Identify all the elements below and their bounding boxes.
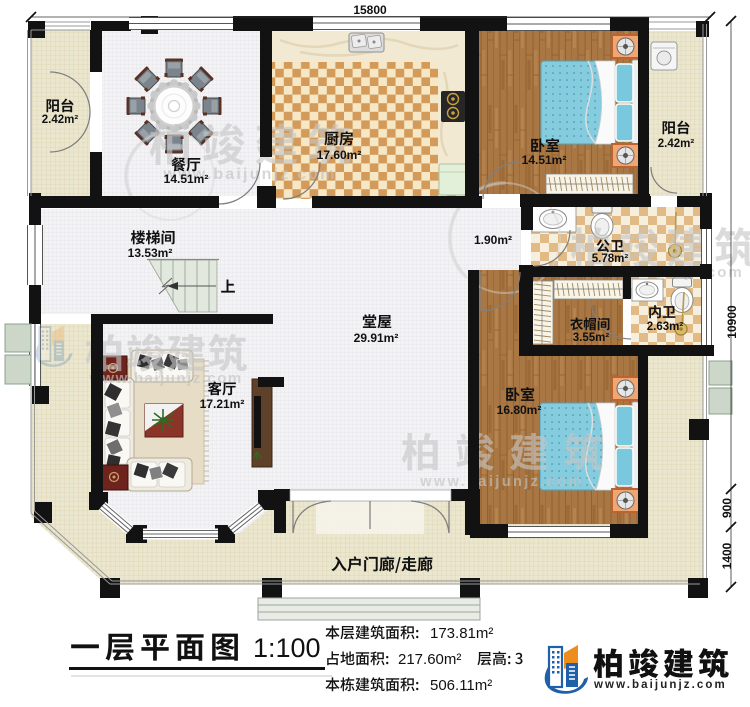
- svg-text:www.baijunjz.com: www.baijunjz.com: [593, 679, 727, 691]
- svg-text:16.80m²: 16.80m²: [497, 403, 542, 417]
- svg-text:2.42m²: 2.42m²: [658, 138, 695, 150]
- svg-text:1400: 1400: [720, 542, 734, 569]
- svg-text:14.51m²: 14.51m²: [522, 153, 567, 167]
- svg-text:506.11m²: 506.11m²: [430, 677, 492, 694]
- svg-text:2.63m²: 2.63m²: [647, 321, 684, 333]
- svg-text:3.55m²: 3.55m²: [573, 332, 610, 344]
- svg-text:13.53m²: 13.53m²: [128, 246, 173, 260]
- svg-text:217.60m²: 217.60m²: [398, 651, 461, 668]
- svg-text:2.42m²: 2.42m²: [42, 114, 79, 126]
- svg-text:17.60m²: 17.60m²: [317, 148, 362, 162]
- svg-text:5.78m²: 5.78m²: [592, 253, 629, 265]
- svg-text:173.81m²: 173.81m²: [430, 625, 493, 642]
- svg-text:10900: 10900: [725, 305, 739, 339]
- svg-text:1.90m²: 1.90m²: [474, 233, 512, 247]
- svg-text:17.21m²: 17.21m²: [200, 397, 245, 411]
- svg-text:29.91m²: 29.91m²: [354, 331, 399, 345]
- svg-text:900: 900: [720, 498, 734, 518]
- svg-text:15800: 15800: [353, 3, 387, 17]
- svg-text:www.baijunjz.com: www.baijunjz.com: [419, 474, 584, 490]
- svg-text:14.51m²: 14.51m²: [164, 172, 209, 186]
- svg-text:1:100: 1:100: [253, 633, 321, 663]
